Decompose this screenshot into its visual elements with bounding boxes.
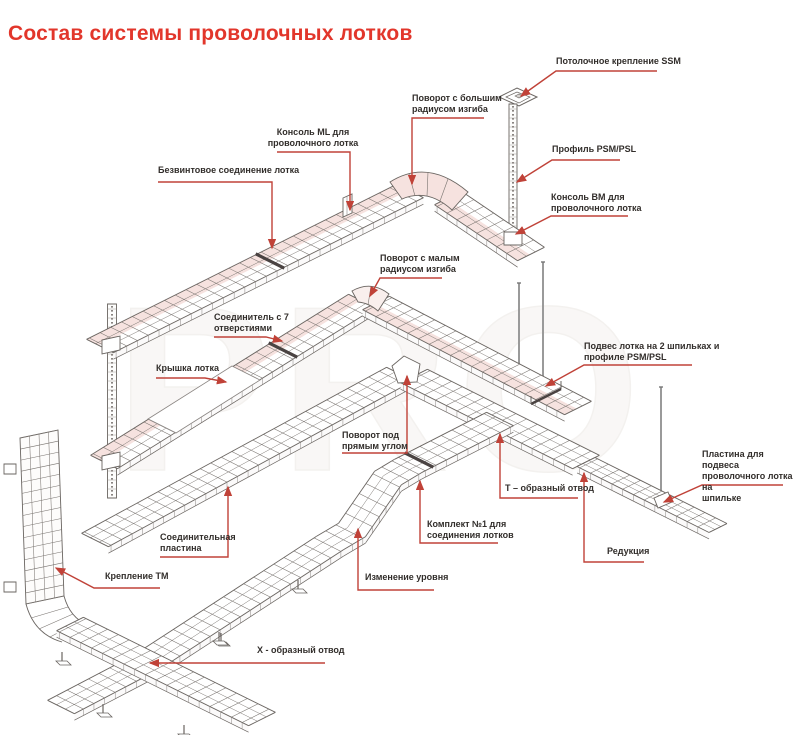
- label-kit1: Комплект №1 для соединения лотков: [427, 519, 514, 541]
- label-screwless: Безвинтовое соединение лотка: [158, 165, 299, 176]
- label-suspension2: Подвес лотка на 2 шпильках и профиле PSM…: [584, 341, 719, 363]
- callout-leader-layer: [0, 0, 796, 735]
- label-connector7: Соединитель с 7 отверстиями: [214, 312, 289, 334]
- label-join-plate: Соединительная пластина: [160, 532, 236, 554]
- label-cover: Крышка лотка: [156, 363, 219, 374]
- leader-screwless: [158, 182, 272, 248]
- label-level-change: Изменение уровня: [365, 572, 448, 583]
- page-title: Состав системы проволочных лотков: [8, 22, 413, 46]
- label-x-branch: X - образный отвод: [257, 645, 345, 656]
- leader-suspension2: [546, 365, 692, 386]
- label-right-angle: Поворот под прямым углом: [342, 430, 408, 452]
- label-reduction: Редукция: [607, 546, 649, 557]
- leader-psm-profile: [517, 160, 620, 182]
- diagram-stage: PRO Состав системы проволочных лотков По…: [0, 0, 796, 735]
- leader-cover: [156, 378, 226, 382]
- label-small-radius: Поворот с малым радиусом изгиба: [380, 253, 460, 275]
- leader-ml-console: [277, 152, 350, 210]
- label-t-branch: Т – образный отвод: [505, 483, 594, 494]
- label-ml-console: Консоль ML для проволочного лотка: [268, 127, 359, 149]
- label-bm-console: Консоль BM для проволочного лотка: [551, 192, 642, 214]
- leader-big-radius: [412, 118, 484, 184]
- label-tm-fix: Крепление TM: [105, 571, 169, 582]
- leader-small-radius: [370, 278, 442, 296]
- leader-ssm: [521, 71, 657, 96]
- label-big-radius: Поворот с большим радиусом изгиба: [412, 93, 502, 115]
- leader-connector7: [214, 337, 282, 341]
- label-ssm: Потолочное крепление SSM: [556, 56, 681, 67]
- label-psm-profile: Профиль PSM/PSL: [552, 144, 636, 155]
- leader-bm-console: [516, 216, 628, 234]
- label-plate-stud: Пластина для подвеса проволочного лотка …: [702, 449, 796, 504]
